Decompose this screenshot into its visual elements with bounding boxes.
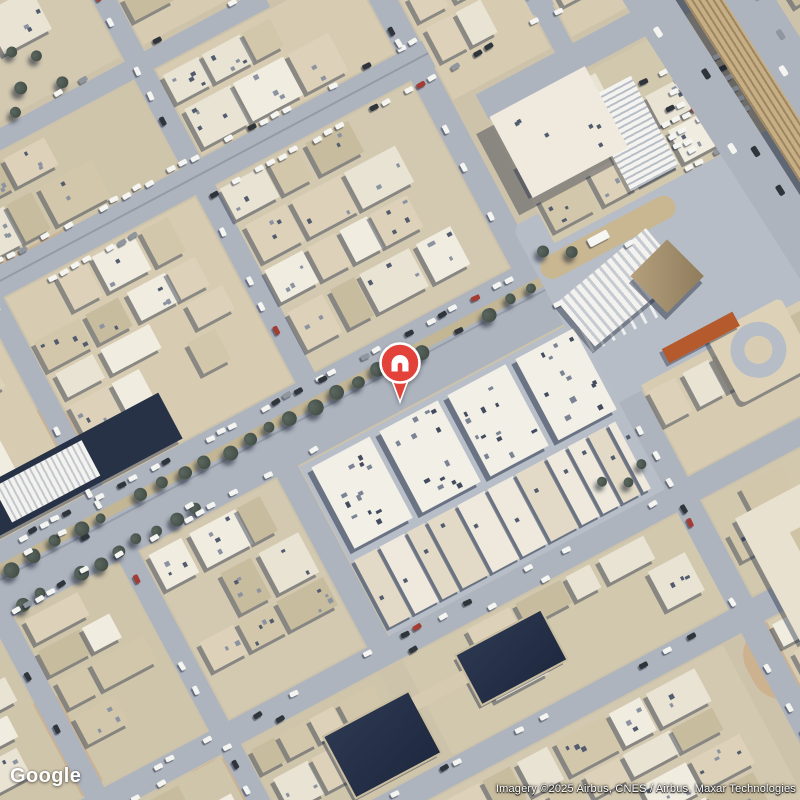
map-feature: [40, 343, 45, 348]
map-feature: [596, 124, 601, 129]
map-feature: [83, 341, 89, 347]
map-feature: [439, 476, 445, 481]
map-feature: [182, 561, 188, 567]
map-feature: [0, 0, 52, 54]
map-feature: [615, 178, 620, 184]
map-feature: [508, 451, 515, 458]
map-feature: [376, 519, 383, 526]
map-feature: [514, 518, 519, 523]
map-feature: [305, 570, 310, 575]
map-feature: [327, 597, 334, 604]
map-feature: [456, 482, 463, 489]
map-feature: [254, 641, 260, 647]
map-feature: [464, 411, 469, 417]
map-feature: [669, 703, 673, 708]
map-feature: [198, 125, 203, 130]
map-feature: [279, 721, 318, 758]
map-feature: [0, 677, 17, 714]
map-feature: [172, 78, 177, 83]
map-feature: [714, 756, 719, 761]
map-feature: [268, 148, 313, 194]
map-feature: [700, 770, 705, 775]
map-feature: [236, 207, 240, 211]
map-feature: [123, 0, 174, 21]
map-feature: [357, 455, 363, 462]
map-feature: [565, 206, 569, 210]
map-feature: [251, 738, 286, 773]
map-feature: [597, 404, 604, 411]
map-feature: [496, 436, 502, 442]
map-feature: [480, 434, 487, 440]
map-feature: [440, 523, 445, 528]
map-feature: [548, 206, 553, 211]
map-feature: [318, 315, 324, 320]
map-feature: [582, 450, 587, 455]
map-feature: [269, 220, 274, 225]
map-feature: [598, 142, 603, 147]
map-feature: [566, 376, 571, 381]
map-feature: [565, 565, 601, 600]
map-feature: [483, 453, 489, 460]
map-feature: [2, 760, 7, 765]
satellite-map-viewport[interactable]: Google Imagery ©2025 Airbus, CNES / Airb…: [0, 0, 800, 800]
map-feature: [402, 199, 408, 204]
map-feature: [625, 435, 630, 440]
map-feature: [395, 440, 400, 446]
map-feature: [680, 576, 685, 581]
map-feature: [475, 435, 480, 440]
map-feature: [253, 74, 259, 80]
map-feature: [200, 625, 248, 671]
map-feature: [115, 716, 121, 722]
map-feature: [559, 370, 565, 376]
map-feature: [218, 549, 223, 555]
map-feature: [164, 561, 170, 567]
map-feature: [66, 195, 71, 200]
map-feature: [444, 460, 450, 467]
map-feature: [376, 185, 381, 190]
map-feature: [717, 749, 722, 754]
map-feature: [685, 575, 690, 580]
map-feature: [140, 217, 186, 266]
map-feature: [86, 417, 91, 423]
map-feature: [269, 619, 274, 624]
map-feature: [386, 263, 392, 269]
map-feature: [534, 488, 539, 493]
map-feature: [279, 94, 285, 99]
map-feature: [386, 210, 391, 215]
map-feature: [580, 746, 586, 753]
map-feature: [56, 666, 99, 708]
map-feature: [286, 286, 292, 292]
marker-circle: [381, 344, 420, 383]
map-feature: [318, 608, 322, 612]
map-feature: [237, 592, 243, 598]
map-feature: [448, 256, 453, 261]
map-feature: [158, 286, 164, 291]
map-feature: [54, 339, 59, 345]
map-feature: [396, 163, 401, 169]
map-feature: [185, 794, 251, 800]
map-feature: [23, 152, 28, 157]
map-feature: [148, 538, 200, 591]
map-feature: [201, 82, 206, 87]
map-feature: [496, 431, 501, 436]
map-feature: [230, 66, 236, 72]
map-feature: [2, 223, 8, 229]
map-feature: [481, 407, 487, 414]
map-feature: [359, 462, 365, 468]
map-feature: [697, 141, 702, 147]
map-feature: [337, 133, 342, 138]
map-feature: [61, 181, 66, 186]
map-feature: [666, 795, 670, 799]
map-feature: [564, 414, 572, 421]
map-feature: [565, 745, 570, 750]
map-feature: [438, 485, 444, 491]
map-feature: [189, 76, 196, 82]
map-feature: [235, 59, 240, 64]
map-feature: [242, 59, 247, 63]
map-feature: [569, 337, 574, 342]
map-feature: [473, 523, 478, 528]
map-feature: [73, 336, 78, 342]
map-feature: [348, 463, 355, 470]
map-feature: [115, 259, 120, 264]
map-feature: [424, 549, 429, 554]
location-marker[interactable]: [377, 342, 423, 404]
map-feature: [346, 210, 351, 215]
map-feature: [375, 509, 382, 515]
map-feature: [358, 491, 364, 497]
map-feature: [424, 477, 431, 483]
map-feature: [316, 588, 322, 593]
map-feature: [403, 577, 408, 582]
map-feature: [78, 413, 84, 419]
map-feature: [610, 455, 615, 460]
map-feature: [648, 552, 705, 609]
map-feature: [114, 325, 119, 330]
map-feature: [549, 356, 554, 361]
map-feature: [225, 516, 230, 521]
map-feature: [564, 469, 569, 474]
map-feature: [341, 493, 348, 499]
map-feature: [300, 265, 304, 269]
map-feature: [215, 537, 221, 543]
map-feature: [431, 408, 437, 414]
map-feature: [224, 646, 229, 651]
map-feature: [107, 706, 113, 711]
map-feature: [163, 302, 168, 306]
map-feature: [574, 744, 580, 751]
map-feature: [416, 226, 470, 282]
map-feature: [285, 792, 290, 797]
map-feature: [737, 750, 742, 755]
map-feature: [425, 409, 431, 414]
map-feature: [588, 124, 593, 129]
map-feature: [488, 386, 494, 391]
map-feature: [272, 234, 277, 239]
map-feature: [547, 0, 608, 6]
map-feature: [446, 231, 452, 237]
map-feature: [272, 89, 279, 95]
map-feature: [408, 0, 449, 21]
map-feature: [257, 588, 262, 593]
map-feature: [436, 427, 442, 433]
map-feature: [554, 343, 559, 348]
map-feature: [415, 272, 419, 277]
map-feature: [637, 707, 642, 712]
map-feature: [531, 429, 537, 435]
map-feature: [74, 696, 130, 745]
map-feature: [544, 133, 549, 138]
map-feature: [258, 624, 263, 629]
map-feature: [412, 416, 419, 423]
map-feature: [35, 9, 40, 14]
map-feature: [320, 75, 326, 81]
map-feature: [99, 324, 105, 330]
map-feature: [495, 403, 499, 407]
map-feature: [211, 55, 217, 61]
map-feature: [626, 720, 632, 726]
map-feature: [790, 500, 800, 586]
map-feature: [351, 514, 358, 520]
map-feature: [632, 726, 638, 732]
map-feature: [670, 582, 676, 588]
map-feature: [465, 418, 471, 425]
map-feature: [290, 283, 295, 289]
map-feature: [368, 280, 374, 286]
map-feature: [281, 549, 286, 554]
map-feature: [345, 501, 352, 508]
map-feature: [168, 572, 172, 576]
map-attribution: Imagery ©2025 Airbus, CNES / Airbus, Max…: [496, 783, 796, 795]
map-feature: [304, 324, 310, 330]
map-feature: [261, 619, 267, 625]
map-feature: [336, 142, 341, 147]
map-feature: [367, 510, 372, 516]
map-feature: [1, 182, 7, 188]
map-feature: [312, 65, 318, 70]
map-feature: [27, 26, 33, 32]
map-feature: [561, 218, 567, 223]
map-feature: [405, 217, 410, 223]
map-feature: [97, 728, 102, 733]
map-feature: [276, 219, 282, 224]
google-logo[interactable]: Google: [10, 765, 81, 788]
map-feature: [569, 396, 577, 404]
map-feature: [669, 694, 675, 700]
map-feature: [540, 352, 545, 358]
map-feature: [234, 640, 240, 646]
map-feature: [110, 282, 116, 287]
map-feature: [307, 218, 312, 224]
map-feature: [244, 196, 250, 202]
map-feature: [544, 392, 549, 397]
map-feature: [444, 0, 494, 1]
map-feature: [0, 351, 5, 407]
map-feature: [392, 229, 398, 234]
map-feature: [313, 784, 319, 789]
map-feature: [411, 433, 418, 439]
map-feature: [223, 113, 228, 118]
map-feature: [379, 595, 384, 600]
map-feature: [236, 576, 241, 581]
map-feature: [187, 328, 231, 374]
map-feature: [208, 532, 214, 538]
map-feature: [366, 464, 373, 470]
map-feature: [359, 248, 428, 312]
map-feature: [605, 193, 609, 197]
